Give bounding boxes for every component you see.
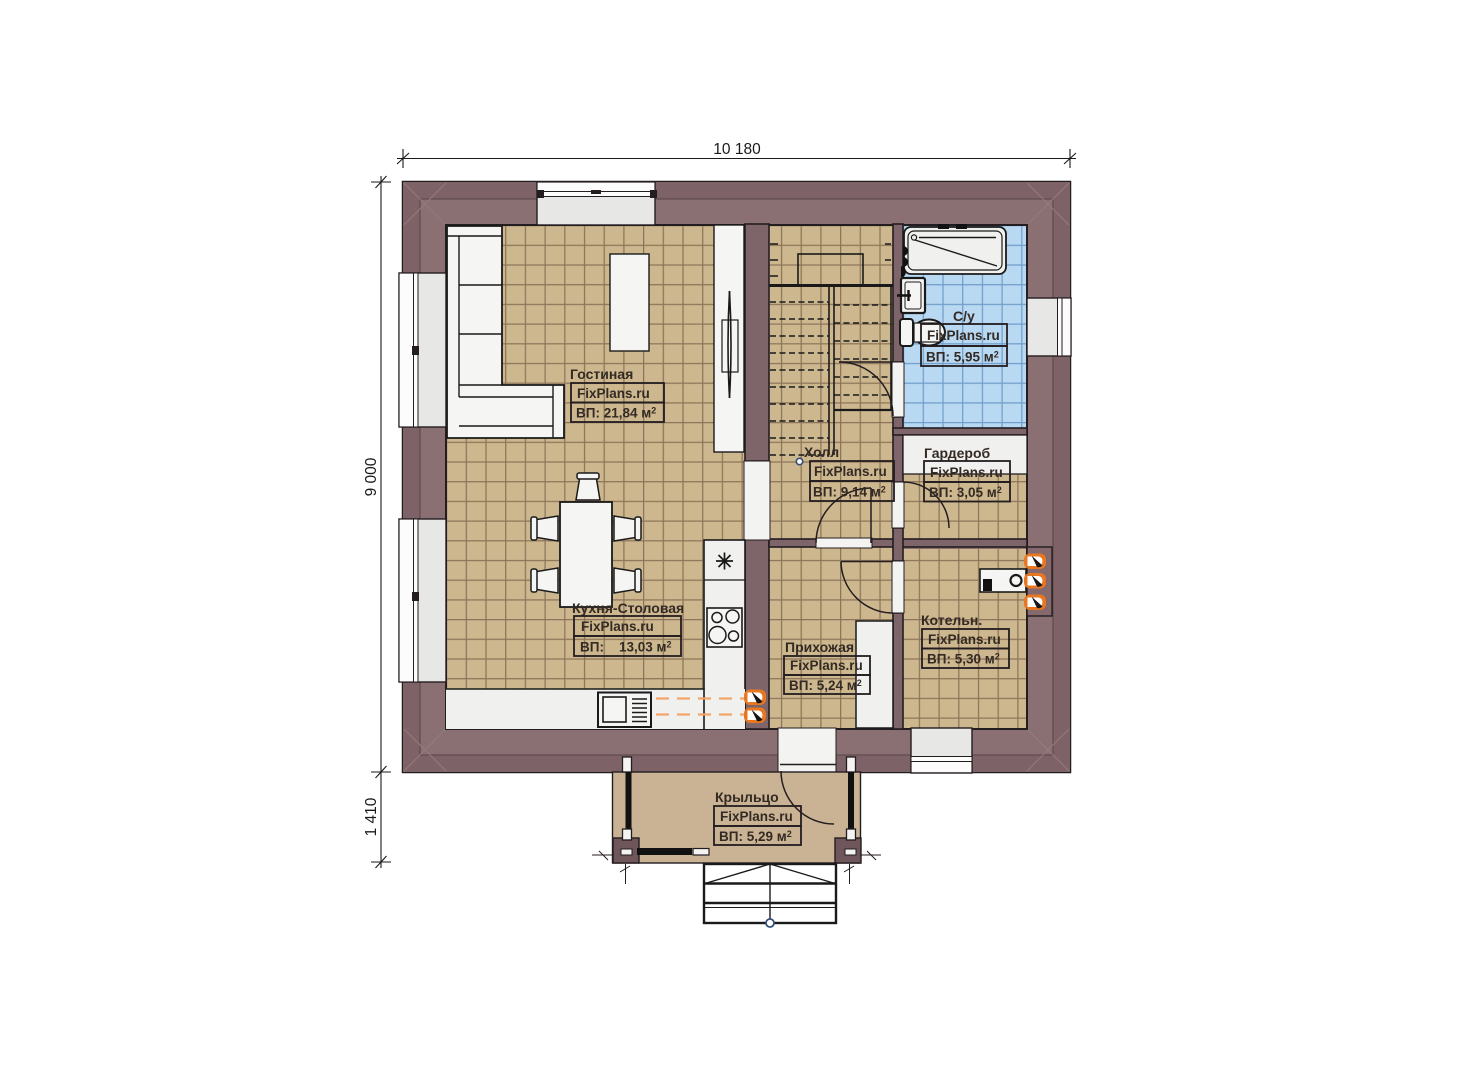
svg-text:С/у: С/у xyxy=(953,308,975,324)
svg-text:Кухня-Столовая: Кухня-Столовая xyxy=(572,600,684,616)
svg-text:Гардероб: Гардероб xyxy=(924,445,991,461)
svg-text:Прихожая: Прихожая xyxy=(785,639,854,655)
svg-text:FixPlans.ru: FixPlans.ru xyxy=(720,809,793,824)
svg-text:Котельн.: Котельн. xyxy=(921,612,982,628)
svg-text:FixPlans.ru: FixPlans.ru xyxy=(814,464,887,479)
svg-text:10 180: 10 180 xyxy=(713,141,761,158)
svg-text:ВП: 5,30 м2: ВП: 5,30 м2 xyxy=(927,652,1000,667)
svg-text:FixPlans.ru: FixPlans.ru xyxy=(790,658,863,673)
svg-text:FixPlans.ru: FixPlans.ru xyxy=(581,619,654,634)
svg-text:ВП: 21,84 м2: ВП: 21,84 м2 xyxy=(576,406,656,421)
svg-text:Крыльцо: Крыльцо xyxy=(715,789,779,805)
svg-text:1 410: 1 410 xyxy=(363,797,380,836)
svg-text:FixPlans.ru: FixPlans.ru xyxy=(930,465,1003,480)
svg-text:FixPlans.ru: FixPlans.ru xyxy=(577,386,650,401)
svg-text:ВП: 5,24 м2: ВП: 5,24 м2 xyxy=(789,678,862,693)
svg-text:ВП: 5,95 м2: ВП: 5,95 м2 xyxy=(926,350,999,365)
svg-text:ВП: 3,05 м2: ВП: 3,05 м2 xyxy=(929,485,1002,500)
svg-text:FixPlans.ru: FixPlans.ru xyxy=(927,328,1000,343)
svg-text:FixPlans.ru: FixPlans.ru xyxy=(928,632,1001,647)
svg-text:9 000: 9 000 xyxy=(363,457,380,496)
svg-text:ВП: 5,29 м2: ВП: 5,29 м2 xyxy=(719,829,792,844)
svg-text:Гостиная: Гостиная xyxy=(570,366,633,382)
svg-text:Холл: Холл xyxy=(804,444,839,460)
svg-text:ВП: 13,03 м2: ВП: 13,03 м2 xyxy=(580,640,672,655)
svg-text:ВП: 9,14 м2: ВП: 9,14 м2 xyxy=(813,485,886,500)
